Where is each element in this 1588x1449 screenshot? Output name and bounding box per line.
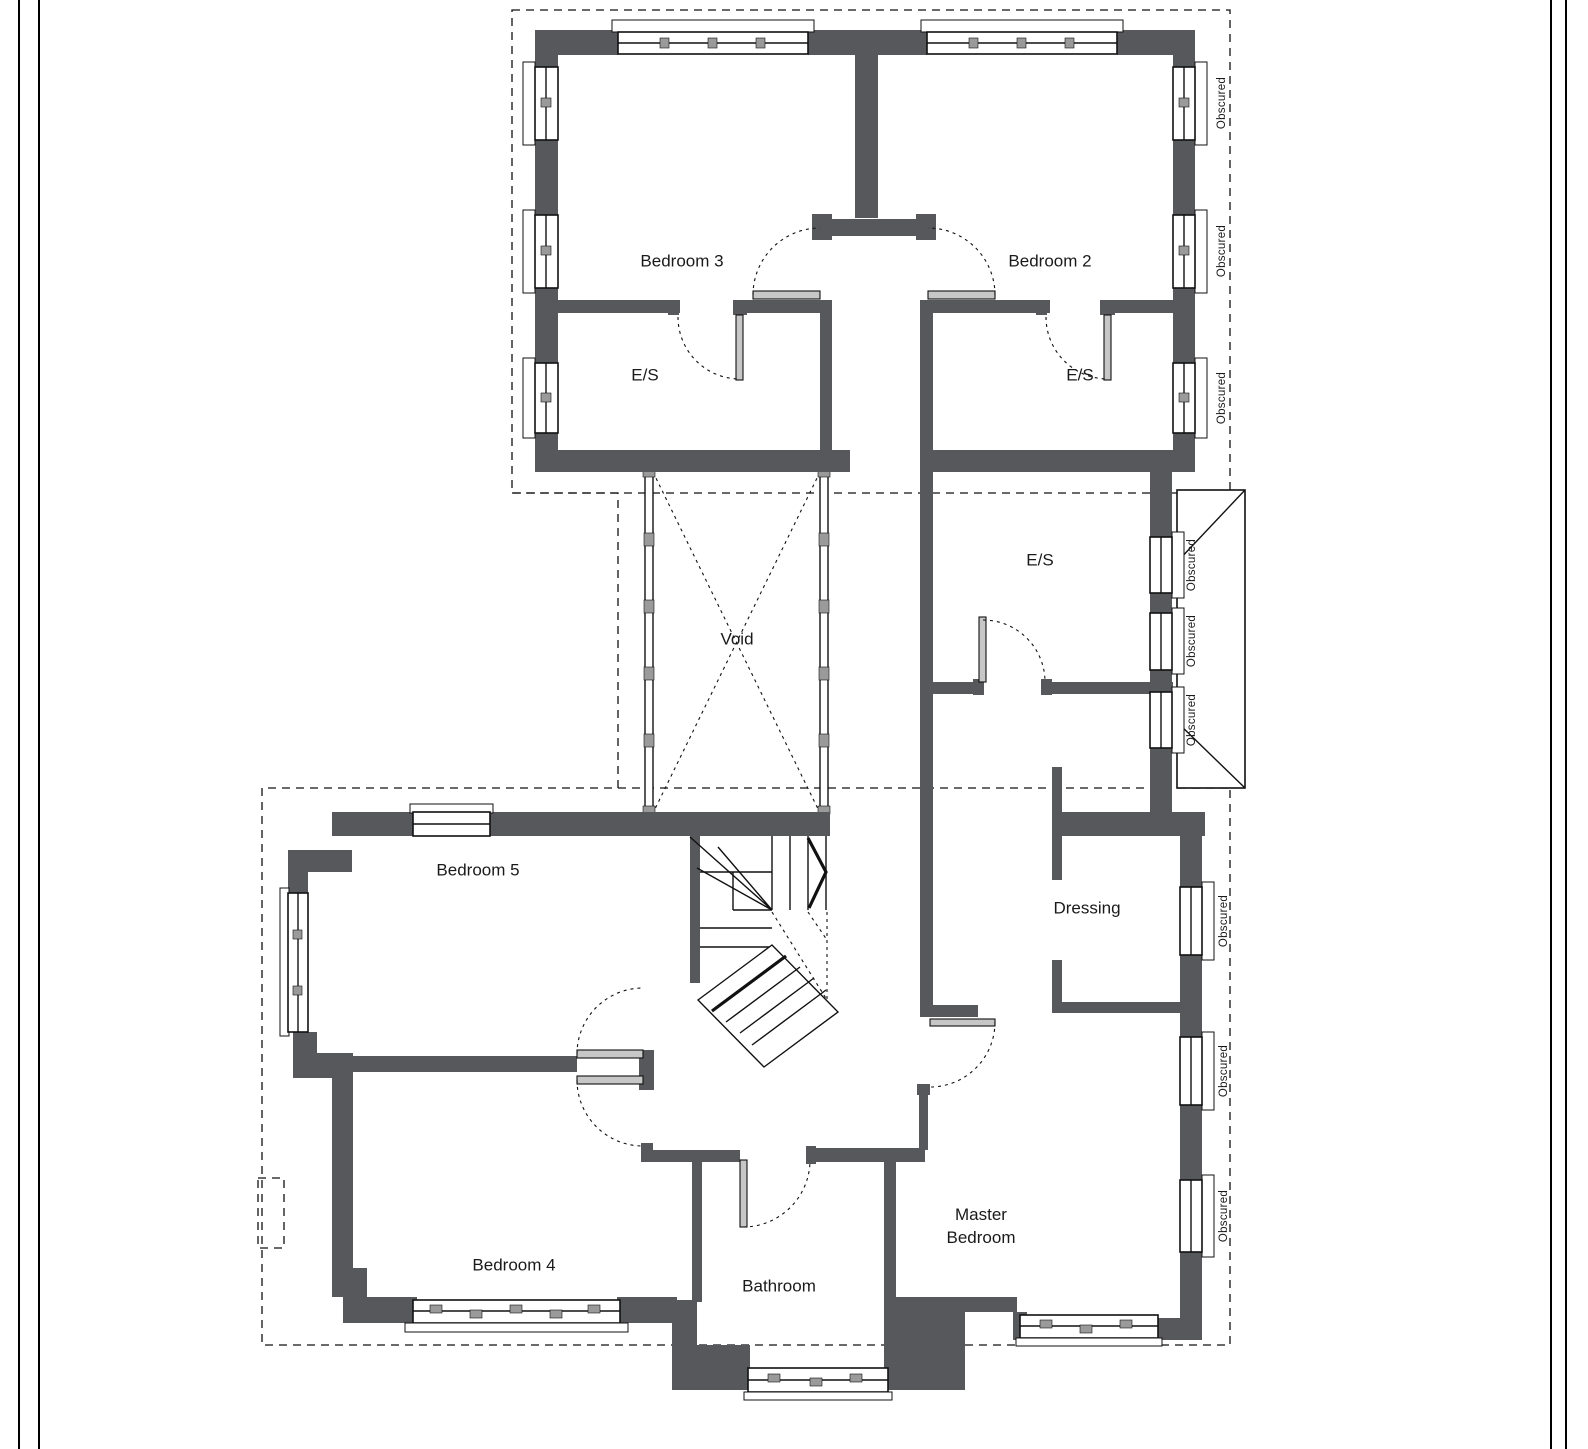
obscured-glazing-label: Obscured — [1186, 539, 1198, 591]
staircase — [690, 836, 838, 1067]
staircase-lower-flight — [698, 945, 838, 1067]
room-label-bedroom-3: Bedroom 3 — [640, 251, 723, 274]
window-ensuite-middle-2 — [1150, 608, 1184, 674]
room-label-master-bedroom: Master Bedroom — [937, 1204, 1025, 1250]
room-label-ensuite-left: E/S — [631, 365, 658, 388]
window-bedroom3-top — [612, 20, 814, 54]
room-label-void: Void — [720, 629, 753, 652]
window-bathroom-bottom — [744, 1368, 892, 1400]
room-label-bedroom-2: Bedroom 2 — [1008, 251, 1091, 274]
room-label-ensuite-middle: E/S — [1026, 550, 1053, 573]
floor-plan-drawing — [0, 0, 1588, 1449]
footprint-dashed-outline — [258, 10, 1230, 1345]
window-bedroom5-top — [410, 804, 493, 836]
window-ensuite-left — [523, 358, 558, 438]
window-bedroom2-top — [921, 20, 1123, 54]
floor-plan-page: Bedroom 3 Bedroom 2 E/S E/S E/S Void Bed… — [0, 0, 1588, 1449]
room-label-dressing: Dressing — [1053, 898, 1120, 921]
void-screen-right — [818, 469, 830, 814]
door-ensuite-middle — [979, 617, 1045, 682]
door-bedroom3 — [753, 228, 820, 299]
window-bedroom4-bottom — [405, 1300, 628, 1332]
door-master-bedroom — [930, 1019, 995, 1087]
room-label-bathroom: Bathroom — [742, 1276, 816, 1299]
window-bedroom3-left-1 — [523, 62, 558, 145]
obscured-glazing-label: Obscured — [1218, 1045, 1230, 1097]
door-ensuite-left — [678, 315, 743, 380]
door-bedroom2 — [928, 228, 995, 299]
window-dressing-right — [1180, 882, 1214, 960]
window-bedroom2-right-1 — [1173, 62, 1207, 145]
door-bedroom5 — [577, 988, 643, 1058]
window-master-bottom — [1016, 1315, 1162, 1346]
obscured-glazing-label: Obscured — [1218, 895, 1230, 947]
door-bathroom — [740, 1160, 810, 1227]
window-master-right-2 — [1180, 1175, 1214, 1257]
room-label-bedroom-5: Bedroom 5 — [436, 860, 519, 883]
obscured-glazing-label: Obscured — [1216, 372, 1228, 424]
obscured-glazing-label: Obscured — [1218, 1190, 1230, 1242]
room-label-ensuite-right: E/S — [1066, 365, 1093, 388]
obscured-glazing-label: Obscured — [1186, 694, 1198, 746]
obscured-glazing-label: Obscured — [1186, 615, 1198, 667]
window-bedroom3-left-2 — [523, 210, 558, 293]
window-ensuite-right — [1173, 358, 1207, 438]
obscured-glazing-label: Obscured — [1216, 77, 1228, 129]
room-label-bedroom-4: Bedroom 4 — [472, 1255, 555, 1278]
window-ensuite-middle-3 — [1150, 687, 1184, 753]
obscured-glazing-label: Obscured — [1216, 225, 1228, 277]
window-master-right-1 — [1180, 1032, 1214, 1110]
void-screen-left — [643, 469, 655, 814]
window-bedroom5-left — [280, 888, 308, 1036]
window-bedroom2-right-2 — [1173, 210, 1207, 293]
window-ensuite-middle-1 — [1150, 532, 1184, 598]
door-bedroom4 — [577, 1076, 643, 1146]
